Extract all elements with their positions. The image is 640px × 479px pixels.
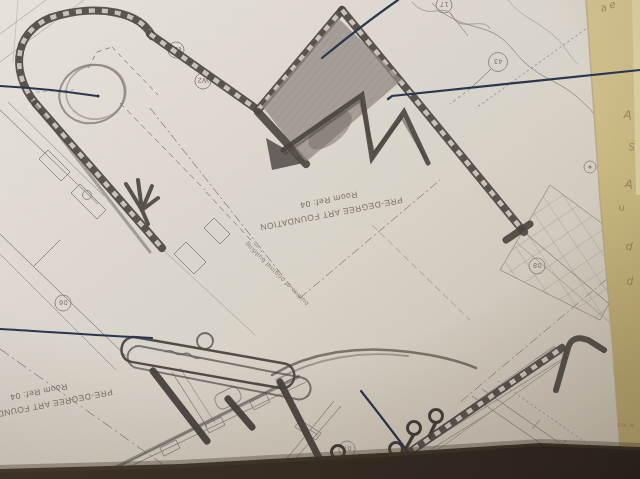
svg-text:43: 43 <box>494 58 503 65</box>
photo-of-floor-plan: W1 W2 43 17 08 07 <box>0 0 640 479</box>
floor-plan-photo-svg: W1 W2 43 17 08 07 <box>0 0 640 479</box>
svg-text:06: 06 <box>59 299 68 306</box>
svg-text:08: 08 <box>533 262 542 269</box>
svg-text:17: 17 <box>440 1 449 8</box>
